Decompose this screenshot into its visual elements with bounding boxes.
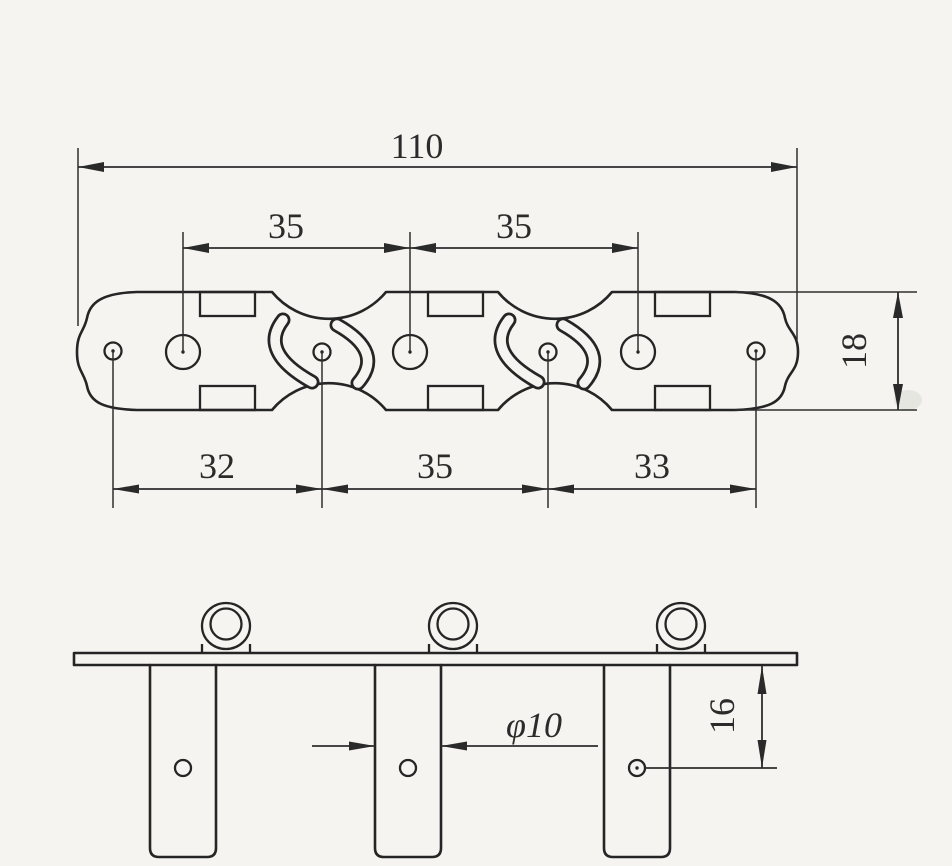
arrowhead [522, 485, 548, 494]
dim-screw-spacing: 32 35 33 [113, 351, 756, 508]
string-hole-2 [400, 760, 416, 776]
gear-slot-bottom-2 [428, 386, 483, 410]
arrowhead [78, 162, 104, 172]
bushing-2 [429, 603, 477, 653]
gear-slot-top-1 [200, 292, 255, 316]
arrowhead [113, 485, 139, 494]
dim-plate-height: 18 [735, 292, 917, 410]
side-view: φ10 16 [74, 603, 797, 857]
arrowhead [441, 742, 467, 751]
arrowhead [771, 162, 797, 172]
arrowhead [296, 485, 322, 494]
dim-label-32: 32 [199, 446, 235, 486]
arrowhead [758, 666, 767, 694]
plate-outline [77, 292, 798, 410]
arrowhead [322, 485, 348, 494]
scanned-drawing-page: 110 35 35 18 [0, 0, 952, 866]
arrowhead [730, 485, 756, 494]
gear-slot-top-3 [655, 292, 710, 316]
arrowhead [612, 243, 638, 253]
gear-slot-bottom-1 [200, 386, 255, 410]
drawing-canvas: 110 35 35 18 [0, 0, 952, 866]
dim-label-110: 110 [391, 126, 444, 166]
arrowhead [410, 243, 436, 253]
dim-label-phi10: φ10 [506, 705, 562, 745]
bushing-3 [657, 603, 705, 653]
dim-overall-width: 110 [78, 126, 797, 340]
arrowhead [183, 243, 209, 253]
dim-label-35-left: 35 [268, 206, 304, 246]
dim-label-18: 18 [834, 333, 874, 369]
bushing-1 [202, 603, 250, 653]
center-mark [635, 766, 638, 769]
dim-label-16: 16 [702, 698, 742, 734]
dim-hole-distance: 16 [645, 666, 777, 768]
dim-label-33: 33 [634, 446, 670, 486]
side-plate [74, 653, 797, 665]
arrowhead [893, 292, 903, 318]
dim-label-35-bottom: 35 [417, 446, 453, 486]
arrowhead [548, 485, 574, 494]
center-marks [111, 349, 757, 353]
arrowhead [384, 243, 410, 253]
arrowhead [349, 742, 375, 751]
dim-label-35-right: 35 [496, 206, 532, 246]
gear-slot-bottom-3 [655, 386, 710, 410]
string-hole-1 [175, 760, 191, 776]
gear-slot-top-2 [428, 292, 483, 316]
arrowhead [758, 740, 767, 768]
dim-post-diameter: φ10 [312, 705, 598, 751]
top-view: 110 35 35 18 [77, 126, 917, 508]
